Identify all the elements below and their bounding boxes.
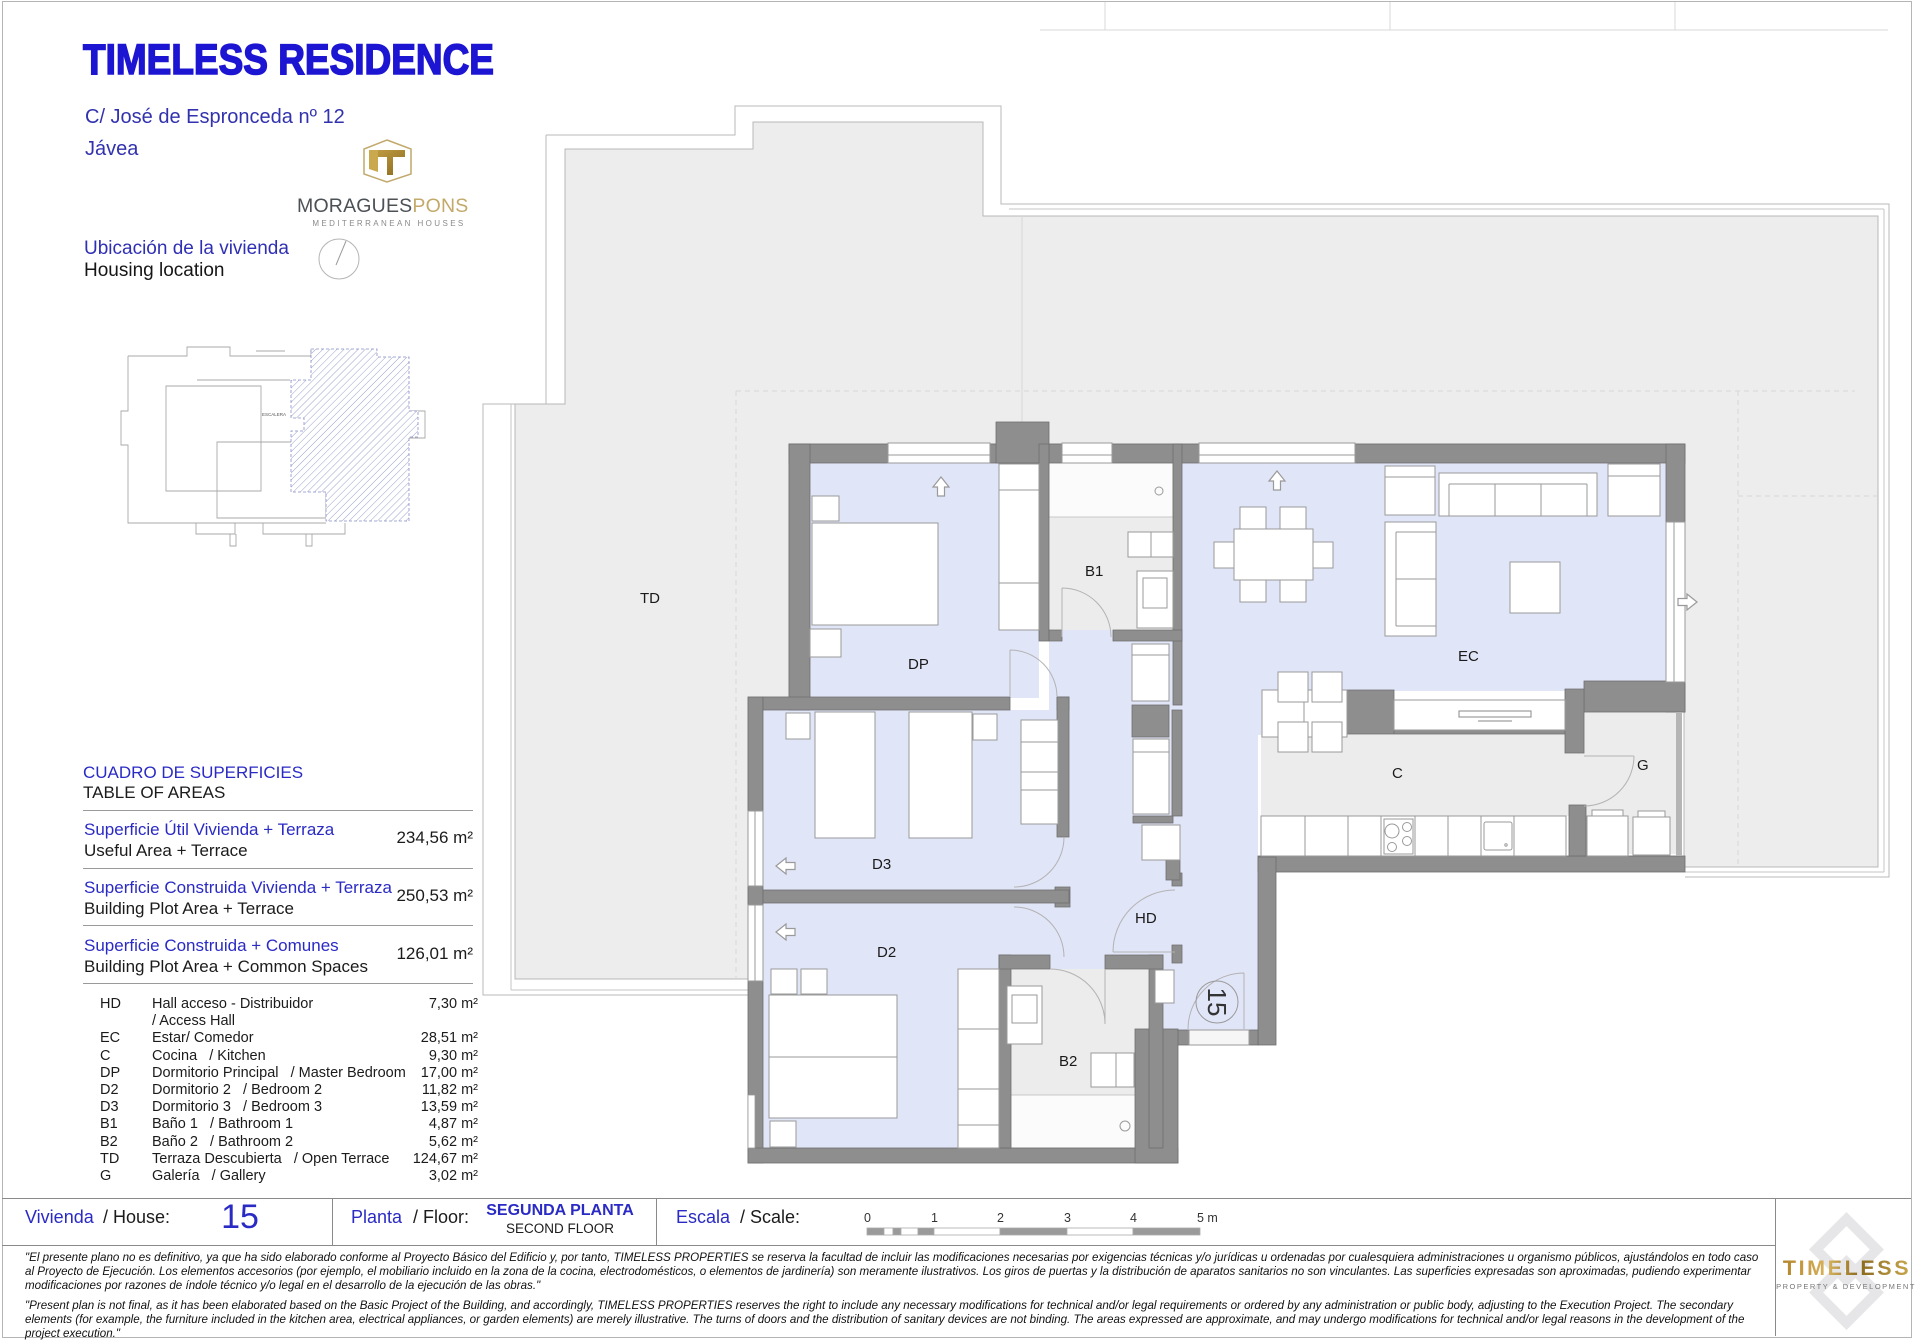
- svg-text:0: 0: [864, 1211, 871, 1225]
- svg-text:TIMELESS: TIMELESS: [1783, 1256, 1911, 1280]
- svg-text:TD: TD: [640, 590, 660, 607]
- svg-text:D3: D3: [872, 856, 891, 873]
- svg-text:1: 1: [931, 1211, 938, 1225]
- svg-text:MORAGUESPONS: MORAGUESPONS: [297, 195, 468, 217]
- svg-text:MEDITERRANEAN HOUSES: MEDITERRANEAN HOUSES: [312, 219, 465, 228]
- svg-text:B2: B2: [1059, 1053, 1077, 1070]
- svg-text:PROPERTY & DEVELOPMENT: PROPERTY & DEVELOPMENT: [1776, 1282, 1916, 1291]
- svg-text:B1: B1: [1085, 563, 1103, 580]
- svg-text:4: 4: [1130, 1211, 1137, 1225]
- svg-text:2: 2: [997, 1211, 1004, 1225]
- svg-text:5 m: 5 m: [1197, 1211, 1218, 1225]
- svg-text:EC: EC: [1458, 648, 1479, 665]
- svg-text:DP: DP: [908, 656, 929, 673]
- svg-text:G: G: [1637, 757, 1649, 774]
- svg-text:3: 3: [1064, 1211, 1071, 1225]
- svg-text:15: 15: [1202, 988, 1232, 1017]
- svg-text:D2: D2: [877, 944, 896, 961]
- svg-text:HD: HD: [1135, 910, 1157, 927]
- svg-text:ESCALERA: ESCALERA: [262, 412, 286, 417]
- svg-text:C: C: [1392, 765, 1403, 782]
